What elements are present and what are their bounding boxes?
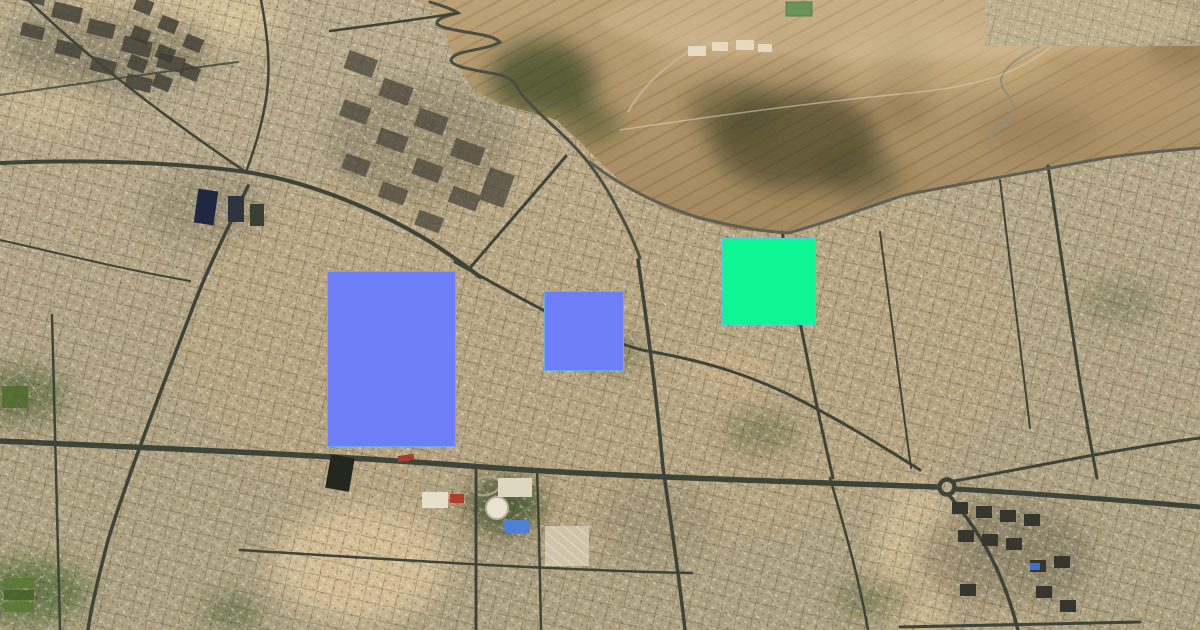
overlay-rect-blue-small [544,291,624,371]
dark-tower [228,196,244,222]
round-white-building [486,497,508,519]
striped-compound [545,526,589,566]
blue-rooftop [1030,563,1040,570]
pool [504,520,530,533]
white-hall [498,478,532,497]
overlay-rect-green [722,238,816,325]
satellite-map-image [0,0,1200,630]
overlay-rect-blue-large [327,271,456,447]
